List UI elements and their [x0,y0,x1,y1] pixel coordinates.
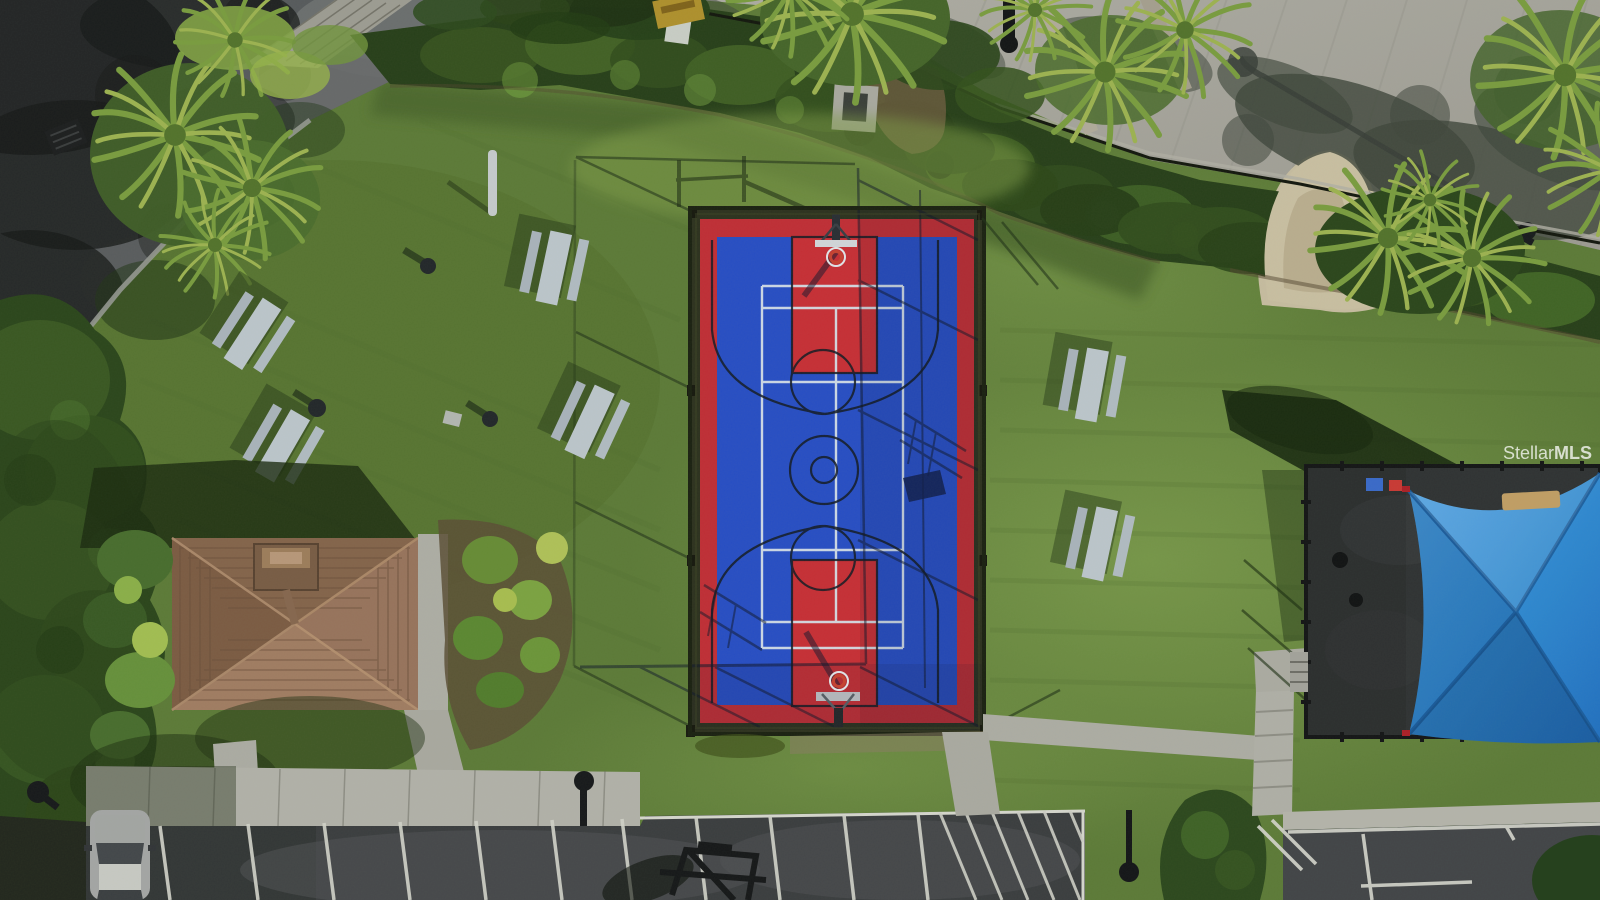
svg-text:StellarMLS: StellarMLS [1503,443,1592,463]
